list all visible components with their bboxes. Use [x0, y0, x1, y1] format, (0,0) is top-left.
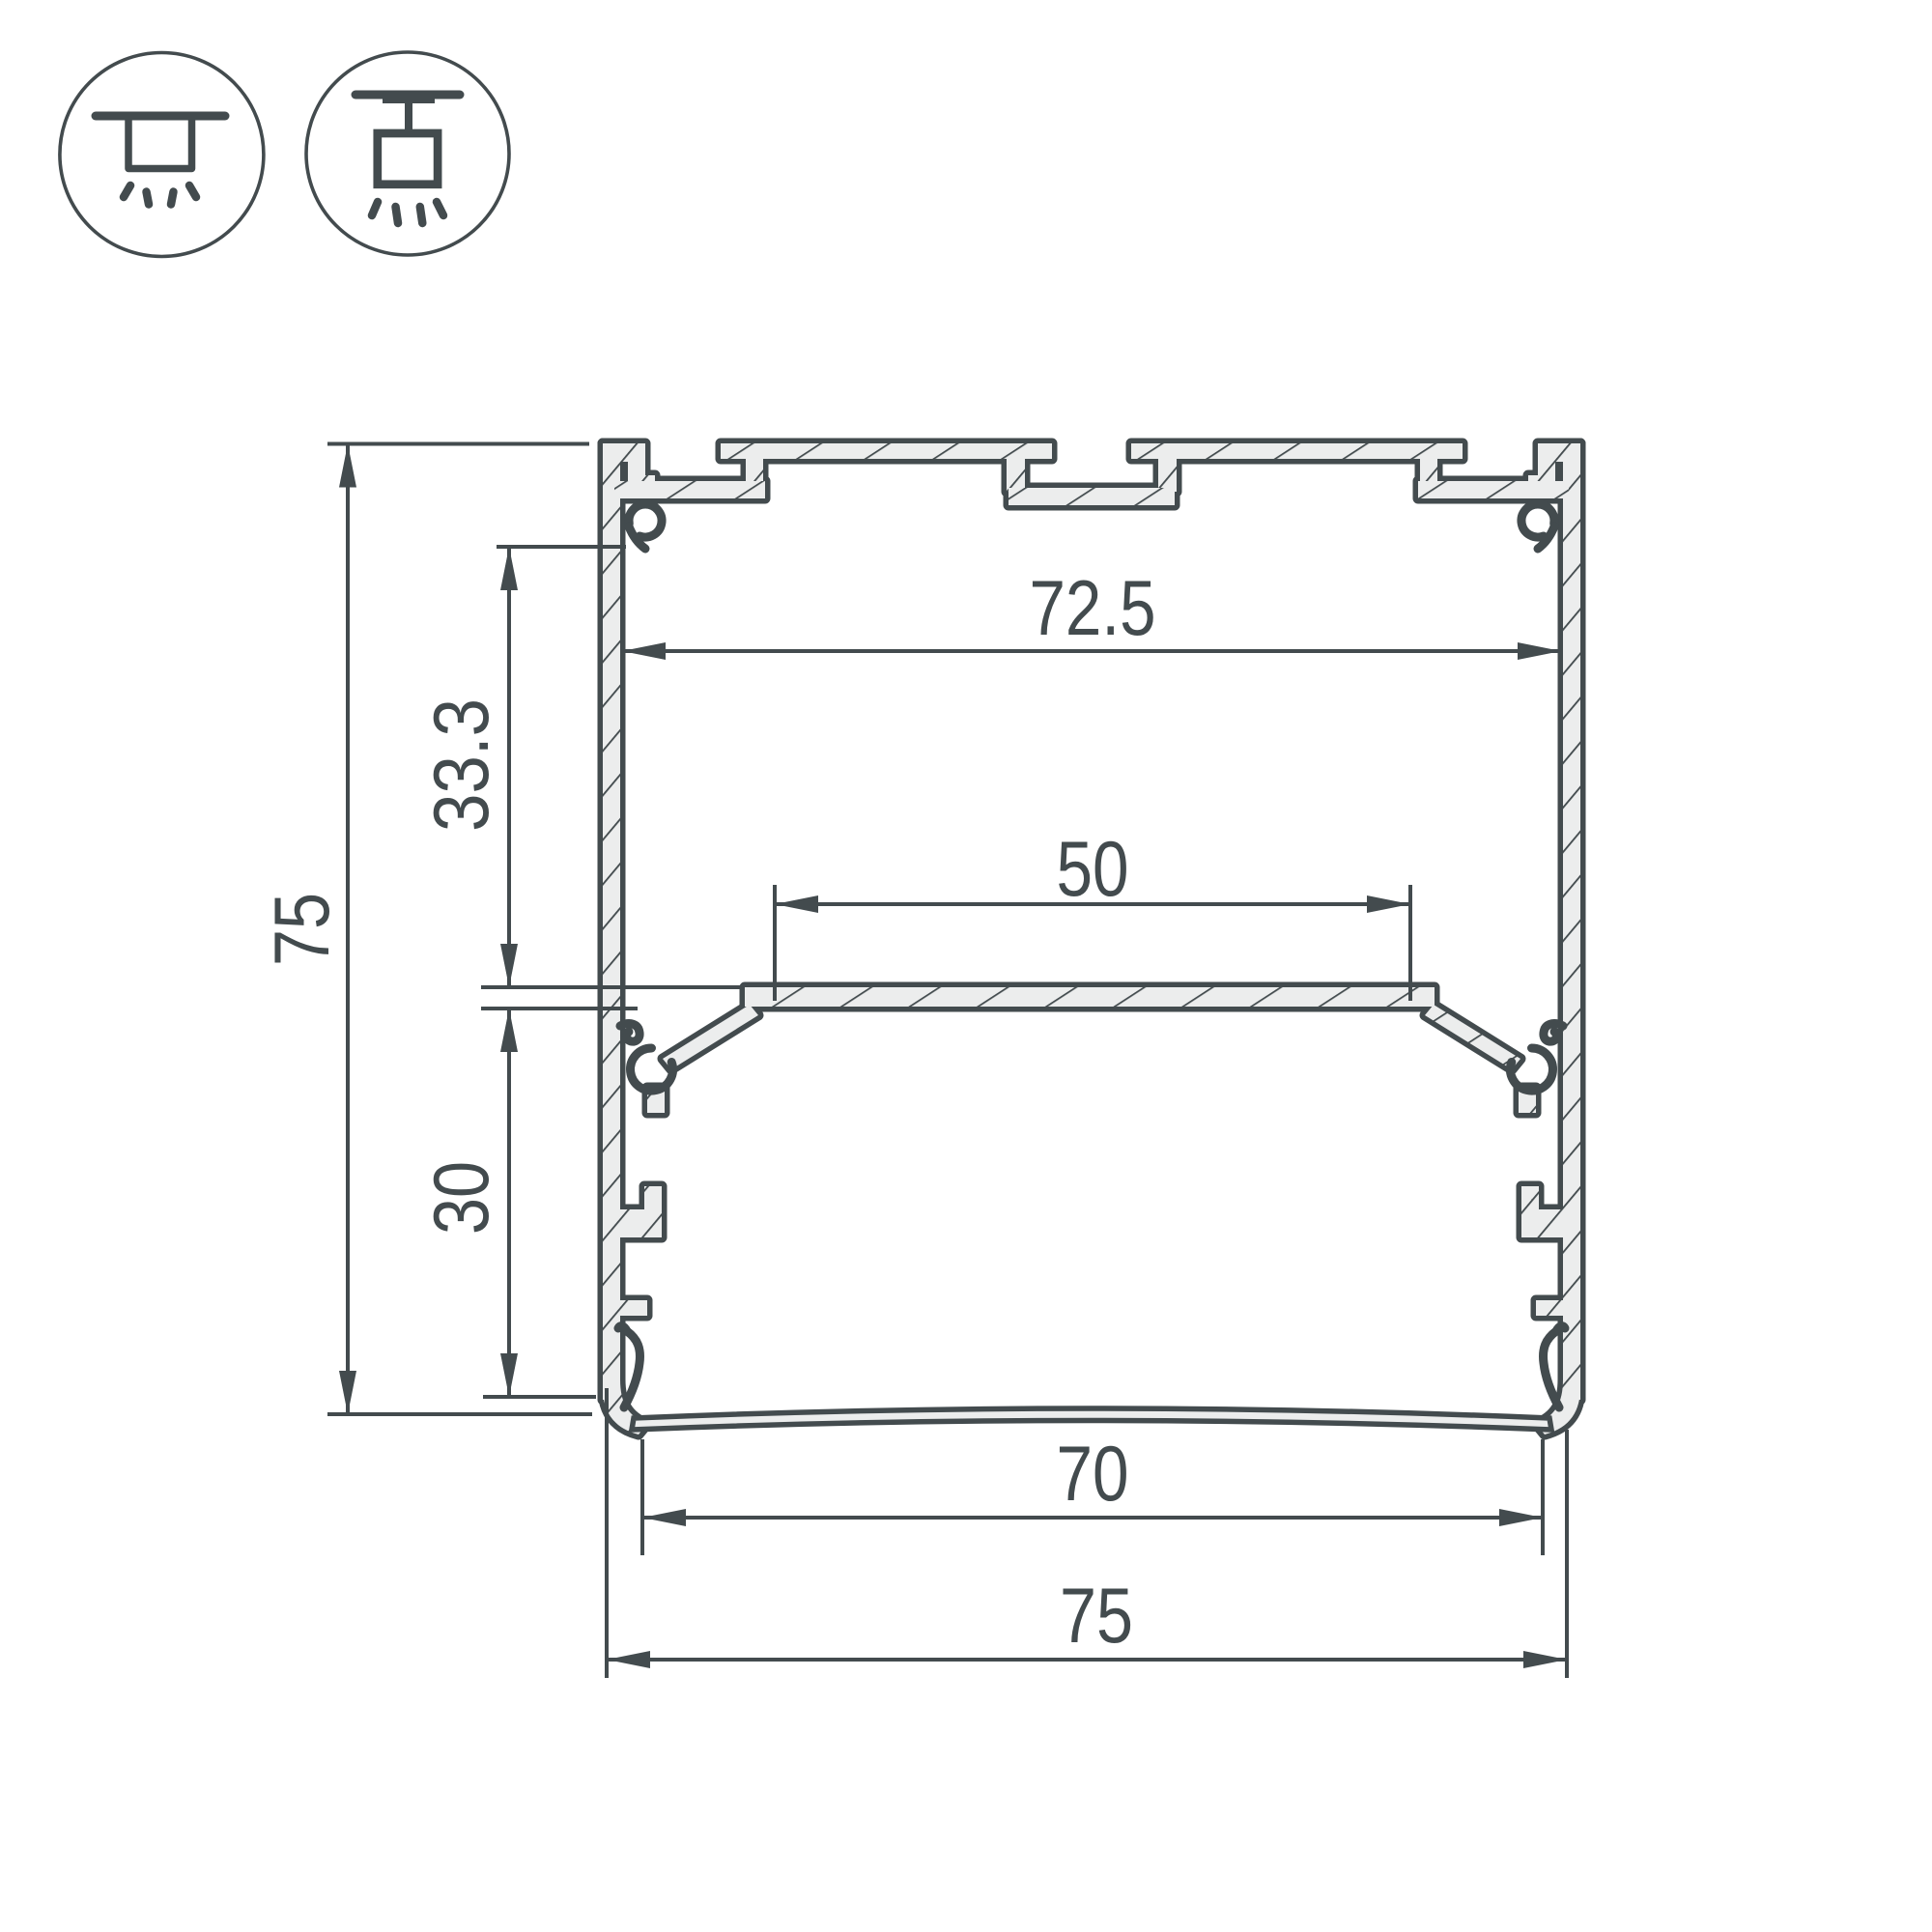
svg-text:70: 70	[1057, 1431, 1129, 1518]
svg-text:33.3: 33.3	[418, 698, 505, 832]
svg-text:72.5: 72.5	[1030, 565, 1156, 652]
svg-text:30: 30	[418, 1161, 505, 1235]
svg-text:75: 75	[259, 893, 346, 966]
svg-text:50: 50	[1057, 826, 1129, 913]
svg-text:75: 75	[1060, 1573, 1133, 1660]
